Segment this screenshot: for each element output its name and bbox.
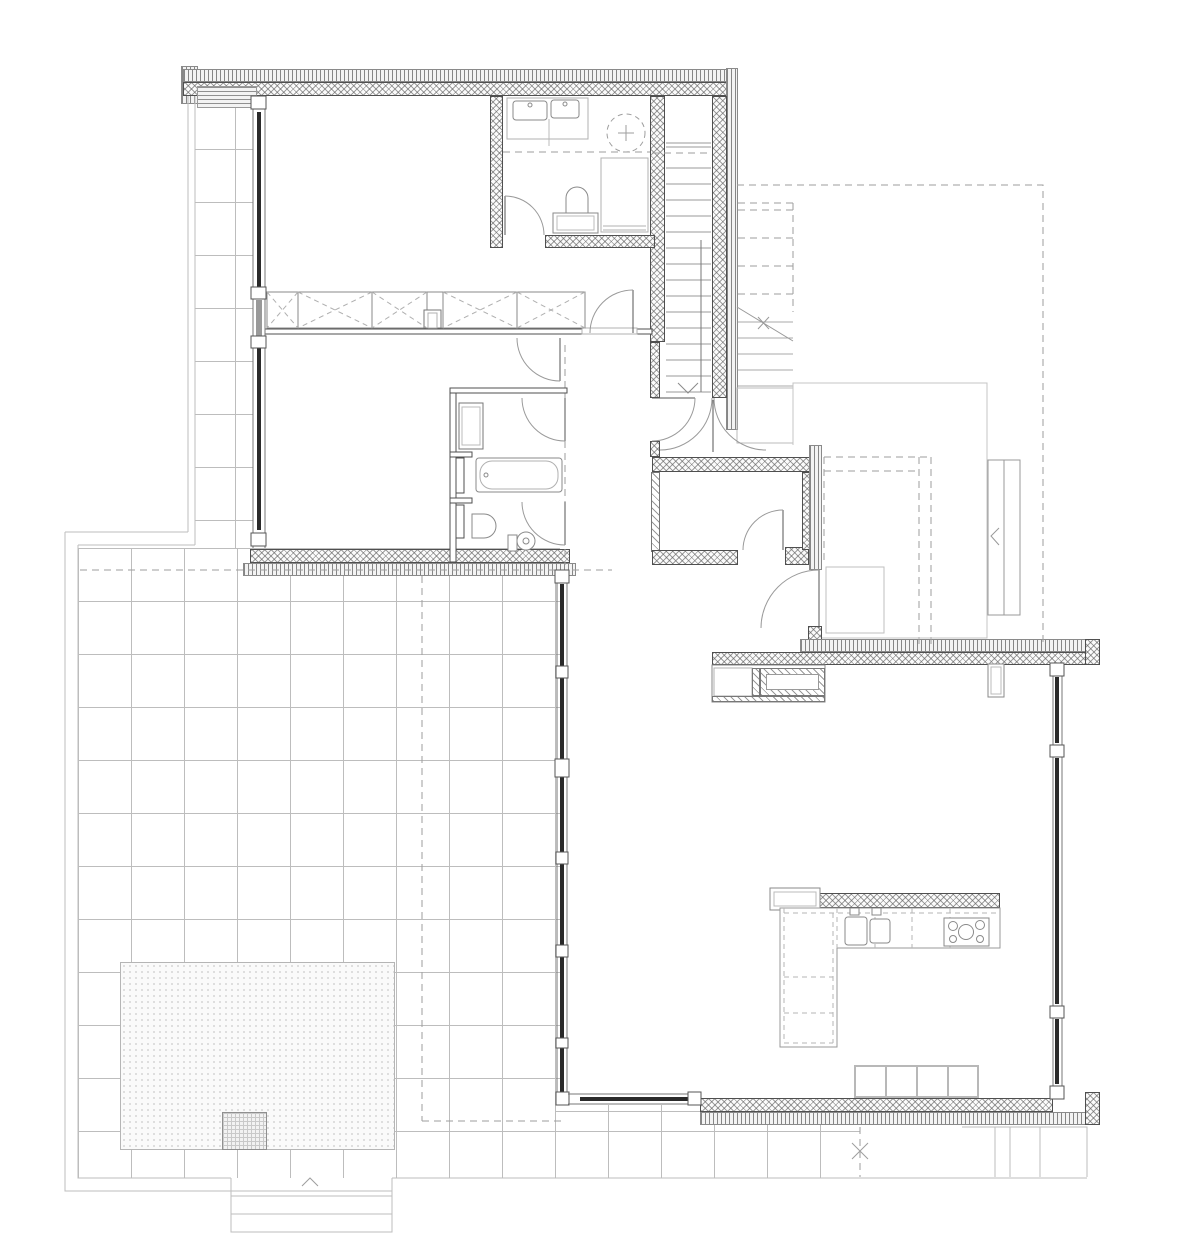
wall-ensuite-stub2 (456, 458, 464, 493)
garden-steps-east (962, 1127, 1087, 1177)
faucet-icon (872, 908, 881, 915)
fireplace-hearth (712, 696, 825, 702)
stair-landing (737, 388, 793, 443)
door-bathroom (505, 196, 544, 235)
fireplace-opening (766, 674, 819, 690)
glazing-west-hall (555, 570, 569, 1105)
glass-pane (580, 1097, 688, 1101)
plan-linework (0, 0, 1200, 1237)
door-entry (761, 570, 819, 628)
steps-arrow-icon (302, 1178, 318, 1186)
door-corridor-stairhall (652, 398, 695, 441)
washbasin-right (551, 100, 579, 118)
stair-ext-treads (738, 322, 793, 386)
glazing-south-living (568, 1092, 701, 1105)
mullion (688, 1092, 701, 1105)
privacy-screen (988, 460, 1020, 615)
door-ensuite-bath (522, 398, 565, 441)
wall-ensuite-west (450, 393, 456, 562)
door-bedroom2 (517, 338, 560, 381)
stair-exterior (737, 307, 793, 443)
entrance-mat (826, 567, 884, 633)
door-storeroom (743, 510, 783, 550)
stair-main (666, 143, 711, 393)
glass-panes (1055, 677, 1059, 1084)
glazing-east-living (1050, 663, 1064, 1099)
upper-floor-outline-west (80, 570, 612, 1121)
counter-end-cap (770, 888, 820, 910)
stair-treads (666, 143, 711, 392)
terrace-pad-east (793, 383, 987, 638)
terrace-boundary (65, 96, 1087, 1191)
glass-panes (560, 584, 564, 1092)
terrace-outline (65, 96, 1087, 1232)
garden-steps-south (231, 1178, 392, 1232)
bench (855, 1066, 978, 1097)
double-door-stair (660, 398, 766, 452)
cooktop (944, 918, 989, 946)
door-bedroom1 (590, 290, 633, 333)
wall-ensuite-stub1 (450, 452, 472, 457)
built-in-closet (459, 403, 483, 449)
ensuite-toilet (472, 514, 496, 538)
skylight (607, 114, 645, 152)
wall-ensuite-stub4 (456, 505, 464, 538)
wall-dressing (265, 329, 582, 334)
ensuite-fixtures (459, 403, 562, 551)
floor-drain (508, 532, 535, 551)
entry-canopy-outline (824, 457, 931, 648)
kitchen (770, 888, 1000, 1097)
bathroom-fixtures (507, 98, 648, 233)
wardrobe-row (267, 292, 585, 328)
washbasin-left (513, 101, 547, 120)
floor-plan (0, 0, 1200, 1237)
wall-ensuite-stub3 (450, 498, 472, 503)
bathtub (476, 458, 562, 492)
shower (601, 158, 648, 232)
solid-panel (256, 300, 262, 336)
exterior-stair-above (738, 203, 793, 312)
stair-break-line (737, 307, 793, 341)
glazing-west-bedroom (251, 96, 266, 548)
skylight-void-line (503, 152, 712, 153)
doors (505, 196, 819, 628)
radiator-column (988, 664, 1004, 697)
faucet-icon (850, 908, 859, 915)
wall-ensuite-north (450, 388, 567, 393)
fireplace-divider (752, 668, 760, 696)
toilet (553, 187, 598, 233)
wall-dressing-east (637, 329, 652, 334)
